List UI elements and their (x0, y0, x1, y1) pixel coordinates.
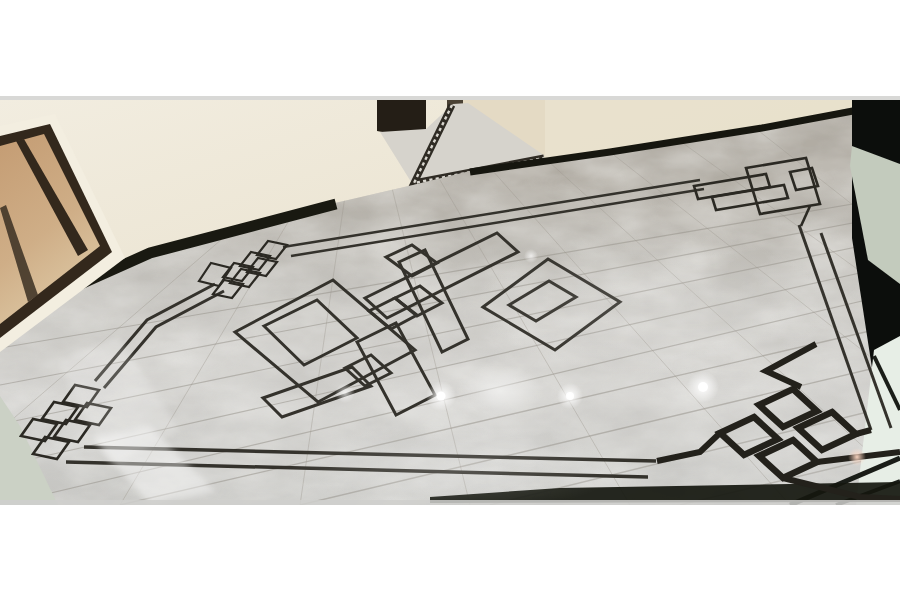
letterbox-bottom (0, 505, 900, 600)
photo-edge-bottom (0, 500, 900, 505)
knot-bottomright-weave (856, 430, 871, 434)
light-reflection-core (566, 392, 574, 400)
light-reflection (524, 249, 538, 263)
letterbox-top (0, 0, 900, 96)
scene-canvas (0, 0, 900, 600)
photo-edge-top (0, 96, 900, 100)
marble-floor-photo (0, 0, 900, 600)
photo-content (0, 97, 900, 513)
floor-sheen (280, 423, 620, 513)
light-reflection (335, 383, 355, 403)
floor-sheen (456, 365, 544, 417)
photo-viewer (0, 0, 900, 600)
light-reflection-core (437, 392, 446, 401)
light-reflection-core (698, 382, 708, 392)
floor-sheen (465, 230, 845, 380)
light-reflection-warm (848, 448, 866, 466)
